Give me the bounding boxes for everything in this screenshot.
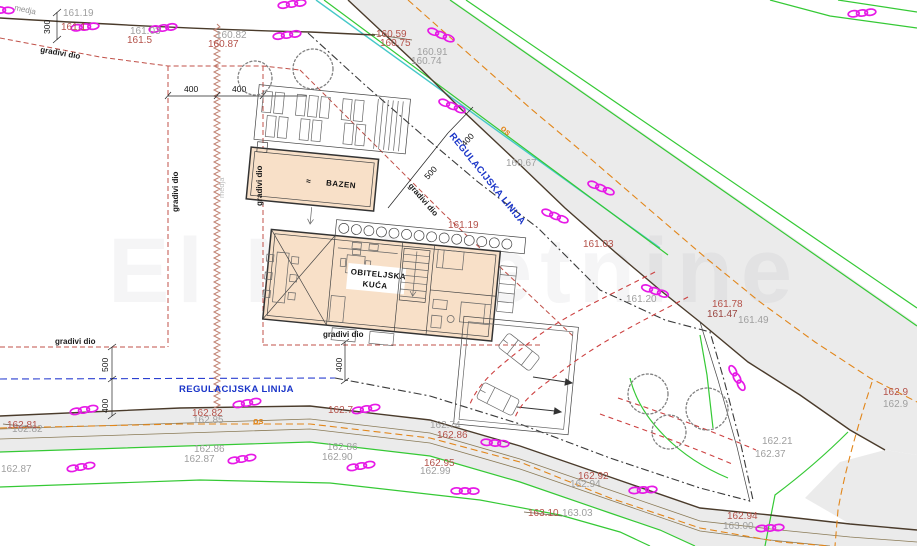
road-axis-label: os xyxy=(253,416,264,426)
dim-label: 500 xyxy=(100,358,110,372)
elevation-design-label: 162.7 xyxy=(328,405,353,416)
elevation-existing-label: 163.03 xyxy=(562,508,593,519)
deck-stair-line xyxy=(384,100,389,150)
trellis-plank xyxy=(295,94,306,116)
elevation-design-label: 161.47 xyxy=(707,309,738,320)
regulation-line-label: REGULACIJSKA LINIJA xyxy=(179,384,294,395)
buildable-part-label: gradivi dio xyxy=(323,330,364,339)
buildable-part-label: gradivi dio xyxy=(406,181,439,218)
trellis-plank xyxy=(265,115,276,137)
elevation-design-label: 162.9 xyxy=(883,387,908,398)
elevation-existing-label: 163.00 xyxy=(723,521,754,532)
elevation-design-label: 163.10 xyxy=(528,508,559,519)
elevation-design-label: 162.92 xyxy=(578,471,609,482)
tree-canopy xyxy=(686,388,728,430)
elevation-design-label: 161.1 xyxy=(61,22,86,33)
elevation-design-label: 160.75 xyxy=(380,38,411,49)
site-plan-page: El Nekretnine xyxy=(0,0,917,546)
trellis-plank xyxy=(311,120,322,142)
elevation-existing-label: 162.21 xyxy=(762,436,793,447)
buildable-part-label: gradivi dio xyxy=(255,165,264,206)
elevation-design-label: 161.19 xyxy=(448,220,479,231)
buildable-part-label: gradivi dio xyxy=(171,171,180,212)
medja-label: medja xyxy=(217,177,226,198)
elevation-design-label: 162.95 xyxy=(424,458,455,469)
site-plan-drawing: El Nekretnine xyxy=(0,0,917,546)
trellis-plank xyxy=(355,124,366,146)
trellis-plank xyxy=(307,95,318,117)
elevation-existing-label: 161.49 xyxy=(738,315,769,326)
trellis-plank xyxy=(353,100,364,122)
dim-line xyxy=(448,107,473,133)
deck-stair-line xyxy=(374,99,379,149)
trellis-plank xyxy=(299,119,310,141)
green-line xyxy=(630,378,728,478)
intersection-surface xyxy=(805,450,917,532)
elevation-design-label: 160.87 xyxy=(208,39,239,50)
buildable-part-label: gradivi dio xyxy=(55,337,96,346)
deck-stair-line xyxy=(389,100,394,150)
car xyxy=(476,382,520,416)
survey-marker-icon xyxy=(227,450,257,468)
elevation-design-label: 162.94 xyxy=(727,511,758,522)
elevation-existing-label: 160.67 xyxy=(506,158,537,169)
deck-stair-line xyxy=(398,101,403,151)
dim-label: 400 xyxy=(184,84,198,94)
dim-label: 300 xyxy=(42,20,52,34)
dim-label: 400 xyxy=(334,358,344,372)
car-direction-arrows xyxy=(517,377,572,414)
elevation-design-label: 161.5 xyxy=(127,35,152,46)
survey-marker-icon xyxy=(727,363,747,394)
survey-marker-icon xyxy=(277,0,307,14)
lower-regulation-line xyxy=(0,378,335,379)
elevation-existing-label: 162.87 xyxy=(184,454,215,465)
deck-stair-line xyxy=(379,100,384,150)
elevation-existing-label: 162.37 xyxy=(755,449,786,460)
elevation-existing-label: 162.9 xyxy=(883,399,908,410)
trellis-plank xyxy=(277,117,288,139)
deck-outline xyxy=(254,85,411,154)
trellis-plank xyxy=(319,97,330,119)
green-line xyxy=(770,0,917,28)
dimensions: 300 400 400 500 400 500 400 400 xyxy=(42,9,476,419)
medja-label: medja xyxy=(14,3,38,16)
survey-marker-icon xyxy=(272,25,302,44)
elevation-existing-label: 162.87 xyxy=(1,464,32,475)
survey-marker-icon xyxy=(66,458,96,476)
site-boundary-line xyxy=(0,18,375,35)
elevation-design-label: 162.82 xyxy=(192,408,223,419)
elevation-existing-label: 162.90 xyxy=(322,452,353,463)
trellis-plank xyxy=(343,123,354,145)
elevation-existing-label: 160.74 xyxy=(411,56,442,67)
elevation-design-label: 162.86 xyxy=(437,430,468,441)
trellis-planks xyxy=(259,91,368,146)
trellis-plank xyxy=(274,92,285,114)
buildable-part-label: gradivi dio xyxy=(40,45,82,61)
medja-zigzag-line xyxy=(214,24,220,408)
green-line xyxy=(838,0,917,12)
elevation-existing-label: 161.20 xyxy=(626,294,657,305)
water-symbol: ≈ xyxy=(306,177,312,186)
dim-label: 400 xyxy=(100,399,110,413)
deck-stairs xyxy=(374,99,404,151)
elevation-existing-label: 161.19 xyxy=(63,8,94,19)
dim-label: 500 xyxy=(422,164,439,181)
deck-stair-line xyxy=(393,101,398,151)
south-step xyxy=(369,331,394,345)
green-line xyxy=(700,335,713,428)
tree-canopy xyxy=(652,415,686,449)
elevation-design-label: 161.03 xyxy=(583,239,614,250)
elevation-design-label: 162.81 xyxy=(7,420,38,431)
